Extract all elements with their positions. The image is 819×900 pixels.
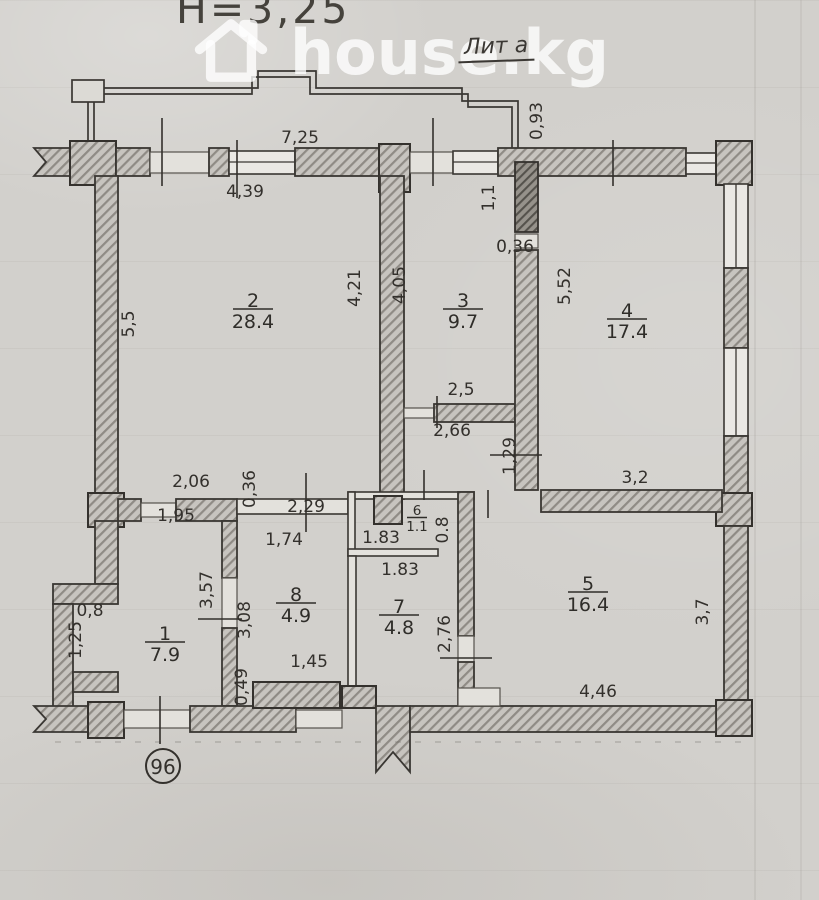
room-label: 17.9 [145,623,185,666]
room-label: 74.8 [379,596,419,639]
room8-room7-divider [348,556,356,706]
window-opening [150,152,209,173]
room7-room5-divider [458,492,474,706]
partition [348,492,355,556]
corner-step [458,688,500,706]
dimension-label: 7,25 [281,128,319,148]
dimension-label: 0,36 [240,470,260,508]
room-area: 16.4 [567,594,609,616]
room-label: 61.1 [406,503,427,535]
dimension-label: 2,5 [447,380,474,400]
room-label: 516.4 [567,573,609,616]
dimension-label: 2,06 [172,472,210,492]
unit-number: 96 [150,755,175,779]
ceiling-height-note: Н=3,25 [176,0,350,33]
column [716,141,752,185]
room-area: 28.4 [232,311,274,333]
stair-break-symbol [376,706,410,772]
dimension-label: 4,46 [579,682,617,702]
room-label: 84.9 [276,584,316,627]
room-area: 7.9 [150,644,180,666]
dimension-label: 3,2 [621,468,648,488]
dimension-label: 0.8 [433,516,453,543]
partition [348,549,438,556]
built-in-shelf [253,682,340,708]
partition [348,492,474,499]
dimension-label: 4,05 [390,266,410,304]
dimension-label: 1,29 [500,437,520,475]
dimension-label: 0,49 [232,668,252,706]
dimension-label: 1.83 [381,560,419,580]
door-opening [124,710,190,728]
dimension-label: 2,29 [287,497,325,517]
room-label: 39.7 [443,290,483,333]
room-label: 228.4 [232,290,274,333]
dimension-label: 1,25 [66,621,86,659]
room-label: 417.4 [606,300,648,343]
scanned-floor-plan-page: Н=3,25 [0,0,819,900]
dimension-label: 4,39 [226,182,264,202]
dimension-label: 0,93 [527,102,547,140]
dimension-label: 1.83 [362,528,400,548]
floor-plan-drawing: 96 7,254,390,935,54,214,051,10,365,522,5… [0,0,819,900]
room-area: 1.1 [406,519,427,535]
room2-room3-divider [380,176,515,499]
window-opening [410,152,453,173]
room-area: 4.8 [384,617,414,639]
dimension-label: 0,36 [496,237,534,257]
room-area: 9.7 [448,311,478,333]
parapet-corner-block [72,80,104,102]
duct-shaft [342,686,376,708]
room-number: 6 [413,503,422,519]
unit-number-badge: 96 [146,749,180,783]
dimension-label: 4,21 [345,269,365,307]
dimension-label: 5,5 [119,310,139,337]
wall-break-symbol [34,706,90,732]
column [88,702,124,738]
duct-shaft [374,496,402,524]
right-outer-wall [716,184,752,736]
liter-annotation: Лит а [458,33,535,64]
dimension-label: 2,66 [433,421,471,441]
bottom-outer-wall [34,682,745,772]
room-area: 17.4 [606,321,648,343]
wall-break-symbol [34,148,70,176]
left-outer-wall [88,176,124,527]
dimension-label: 5,52 [555,267,575,305]
door-opening [404,408,434,418]
dimension-label: 1,45 [290,652,328,672]
dimension-label: 0,8 [76,601,103,621]
dimension-label: 2,76 [435,615,455,653]
dimension-label: 1,1 [479,184,499,211]
room-area: 4.9 [281,605,311,627]
dimension-label: 1,95 [157,506,195,526]
dimension-label: 1,74 [265,530,303,550]
column [716,700,752,736]
dimension-label: 3,7 [693,598,713,625]
wall-stub [515,162,538,232]
door-opening [296,710,342,728]
dimension-label: 3,08 [235,601,255,639]
dimension-label: 3,57 [197,571,217,609]
